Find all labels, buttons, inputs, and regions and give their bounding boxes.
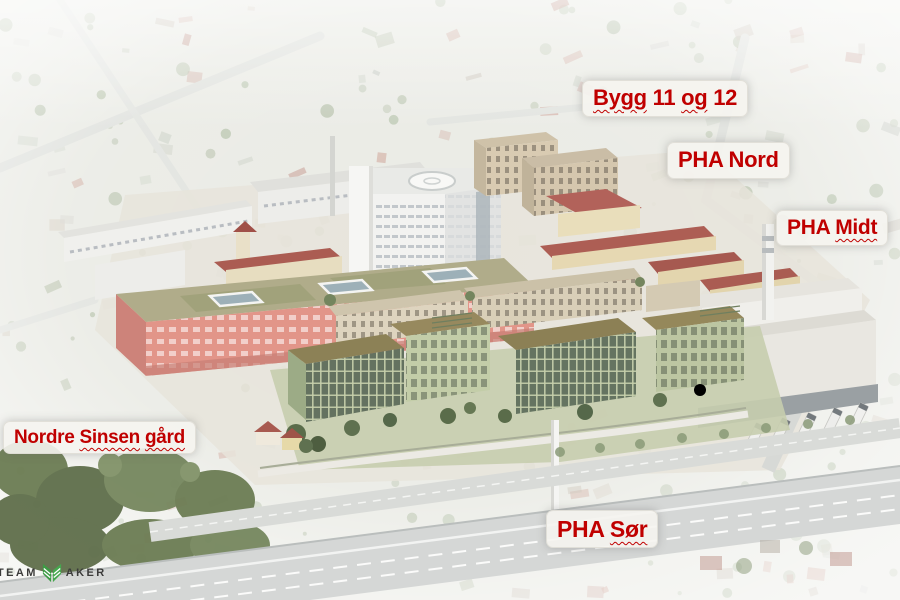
label-text-segment: PHA [787, 215, 835, 241]
label-text-segment: Sør [610, 515, 647, 543]
label-text-segment: PHA [557, 515, 610, 543]
label-pha-nord: PHA Nord [667, 142, 790, 179]
chimney [762, 224, 774, 320]
helipad [409, 172, 455, 190]
label-bygg-11-og-12: Bygg 11 og 12 [582, 80, 748, 117]
label-text-segment: Nordre [14, 426, 79, 449]
label-pha-midt: PHA Midt [776, 210, 888, 246]
label-text-segment: gård [145, 426, 185, 449]
label-text-segment: PHA Nord [678, 147, 779, 174]
slide-aerial-rendering: Bygg 11 og 12 PHA Nord PHA Midt Nordre S… [0, 0, 900, 600]
logo-team-text: TEAM [0, 567, 38, 579]
label-text-segment: Sinsen [79, 426, 140, 449]
label-text-segment: Bygg [593, 85, 647, 112]
aker-hospital-aerial-rendering [0, 0, 900, 600]
team-aker-logo: TEAM AKER [0, 563, 107, 583]
top-fade [0, 0, 900, 130]
label-text-segment: og [681, 85, 707, 112]
logo-aker-text: AKER [66, 567, 107, 579]
label-text-segment: 12 [707, 85, 737, 112]
label-pha-sor: PHA Sør [546, 510, 658, 548]
team-aker-leaf-icon [41, 563, 63, 583]
label-nordre-sinsen-gaard: Nordre Sinsen gård [3, 421, 196, 454]
label-text-segment: Midt [835, 215, 877, 241]
label-text-segment: 11 [647, 85, 681, 112]
